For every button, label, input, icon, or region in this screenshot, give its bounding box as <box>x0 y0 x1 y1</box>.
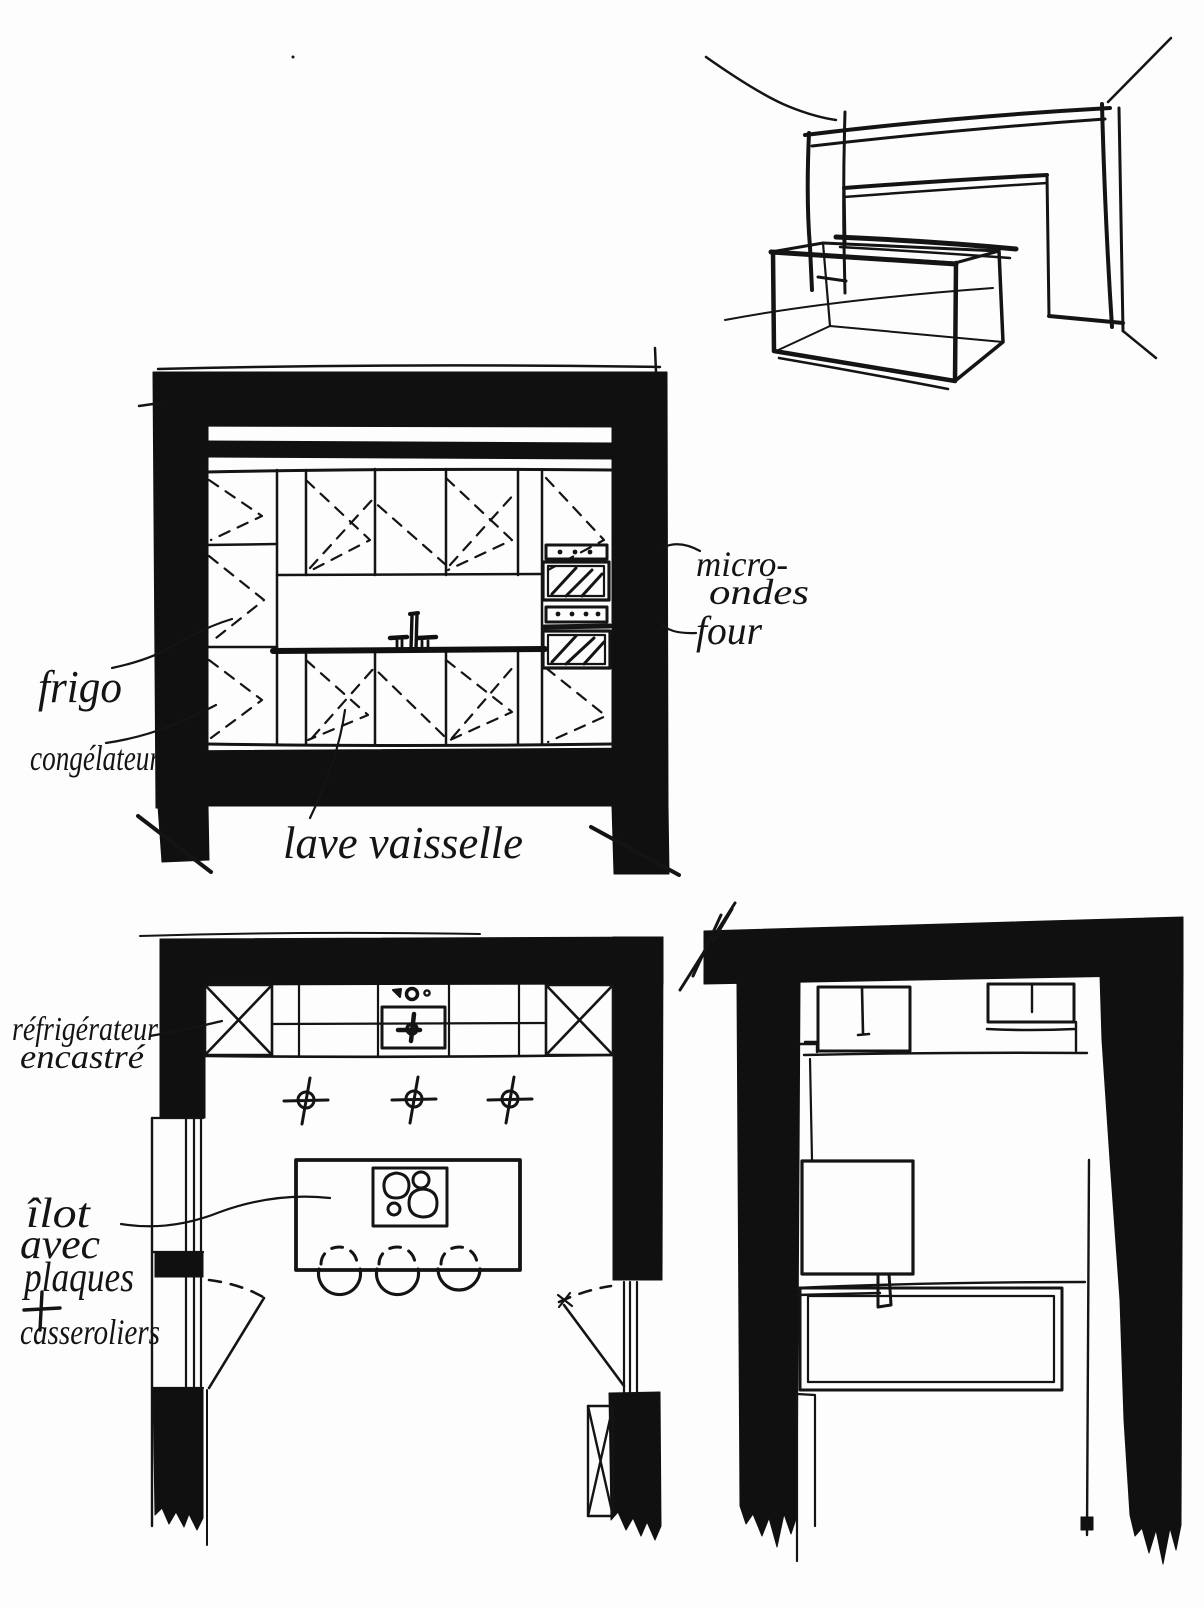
svg-text:casseroliers: casseroliers <box>20 1312 160 1352</box>
svg-text:four: four <box>696 608 762 653</box>
svg-text:encastré: encastré <box>20 1039 146 1076</box>
svg-text:ondes: ondes <box>709 572 809 612</box>
svg-text:congélateur: congélateur <box>30 738 161 778</box>
svg-text:frigo: frigo <box>38 661 122 712</box>
svg-text:plaques: plaques <box>21 1255 134 1301</box>
svg-text:lave vaisselle: lave vaisselle <box>283 817 523 868</box>
